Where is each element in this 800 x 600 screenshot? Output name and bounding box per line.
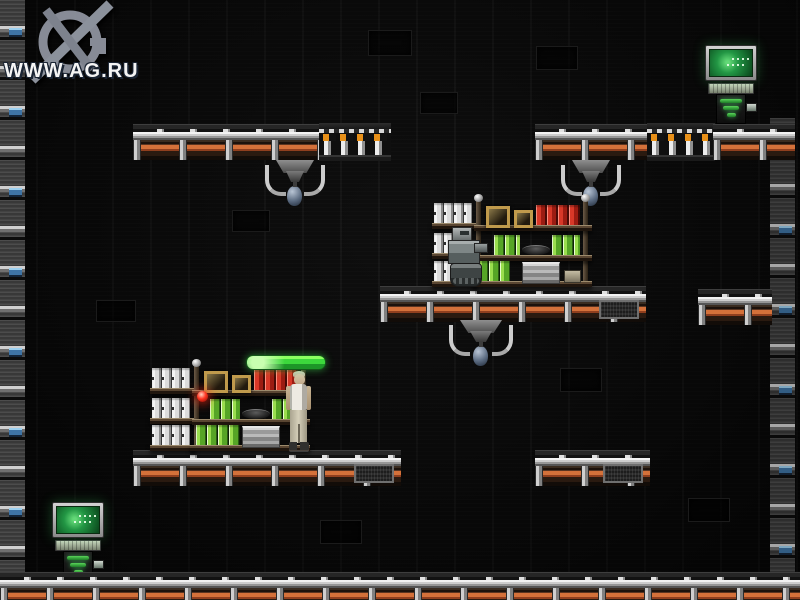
- status-bar: [246, 355, 326, 370]
- shelf-robot[interactable]: [448, 227, 492, 287]
- binders-white: [152, 368, 190, 388]
- green-bar-icon: [70, 563, 86, 567]
- floor-platform: [0, 572, 800, 600]
- player-tank-top: [290, 384, 307, 410]
- terminal-screen: [709, 49, 753, 77]
- robot-orb: [473, 346, 488, 366]
- terminal-knob: [93, 560, 104, 569]
- binders-white: [152, 398, 190, 418]
- wall-panel: [368, 30, 412, 56]
- wall-panel: [688, 498, 730, 522]
- wall-panel: [320, 520, 362, 544]
- binders-white: [152, 425, 190, 445]
- vent-platform: [535, 450, 650, 486]
- player-character[interactable]: [284, 371, 312, 453]
- green-bar-icon: [727, 113, 736, 117]
- picture-frame: [204, 371, 228, 393]
- wall-panel: [420, 92, 458, 114]
- vent-platform: [133, 124, 319, 160]
- watermark-url: WWW.AG.RU: [4, 60, 139, 83]
- binders-green: [210, 399, 240, 419]
- ceiling-robot[interactable]: [450, 320, 512, 370]
- shelf-board: [150, 418, 194, 424]
- dark-disc: [242, 409, 270, 419]
- storage-shelf: [432, 197, 592, 287]
- green-bar-icon: [723, 106, 739, 110]
- dark-disc: [522, 245, 550, 255]
- player-pants: [290, 410, 307, 443]
- robot-eye-icon: [460, 231, 469, 235]
- vent-platform: [133, 450, 401, 486]
- computer-terminal[interactable]: [703, 45, 759, 124]
- picture-frame: [514, 210, 533, 228]
- ceiling-robot[interactable]: [266, 160, 324, 210]
- vent-platform: [380, 286, 646, 322]
- ammo-rack-platform: [647, 123, 715, 161]
- computer-terminal[interactable]: [50, 502, 106, 581]
- game-viewport[interactable]: WWW.AG.RU: [0, 0, 800, 600]
- terminal-knob: [746, 103, 757, 112]
- wall-panel: [232, 210, 270, 232]
- binders-green: [196, 425, 240, 445]
- terminal-monitor: [52, 502, 104, 538]
- screen-text-line: [732, 58, 749, 60]
- robot-head: [452, 227, 472, 241]
- right-wall-machinery: [770, 118, 795, 600]
- vent-platform: [698, 289, 772, 325]
- ammo-rack-platform: [319, 123, 391, 161]
- binders-red: [536, 205, 580, 225]
- binders-white: [434, 203, 472, 223]
- alert-light-icon: [197, 391, 208, 402]
- picture-frame: [486, 206, 510, 228]
- shelf-post: [583, 199, 588, 287]
- wall-panel: [96, 300, 136, 322]
- picture-frame: [232, 375, 251, 393]
- robot-tracks: [450, 263, 482, 287]
- robot-orb: [287, 186, 302, 206]
- green-bar-icon: [67, 556, 89, 560]
- supply-crate: [242, 426, 280, 448]
- terminal-pedestal: [716, 94, 746, 124]
- robot-arm: [474, 243, 488, 253]
- wall-panel: [560, 368, 602, 392]
- shelf-board: [150, 388, 194, 394]
- screen-text-line: [79, 515, 96, 517]
- wall-panel: [536, 46, 578, 70]
- vent-platform: [535, 124, 647, 160]
- screen-text-line: [727, 64, 746, 66]
- terminal-keyboard: [55, 540, 101, 551]
- binders-green: [494, 235, 520, 255]
- small-box: [564, 270, 581, 283]
- terminal-keyboard: [708, 83, 754, 94]
- player-shoes: [289, 442, 309, 450]
- supply-crate: [522, 262, 560, 284]
- screen-text-line: [74, 521, 93, 523]
- vent-platform: [713, 124, 795, 160]
- terminal-screen: [56, 506, 100, 534]
- terminal-monitor: [705, 45, 757, 81]
- binders-green: [552, 235, 580, 255]
- green-bar-icon: [720, 99, 742, 103]
